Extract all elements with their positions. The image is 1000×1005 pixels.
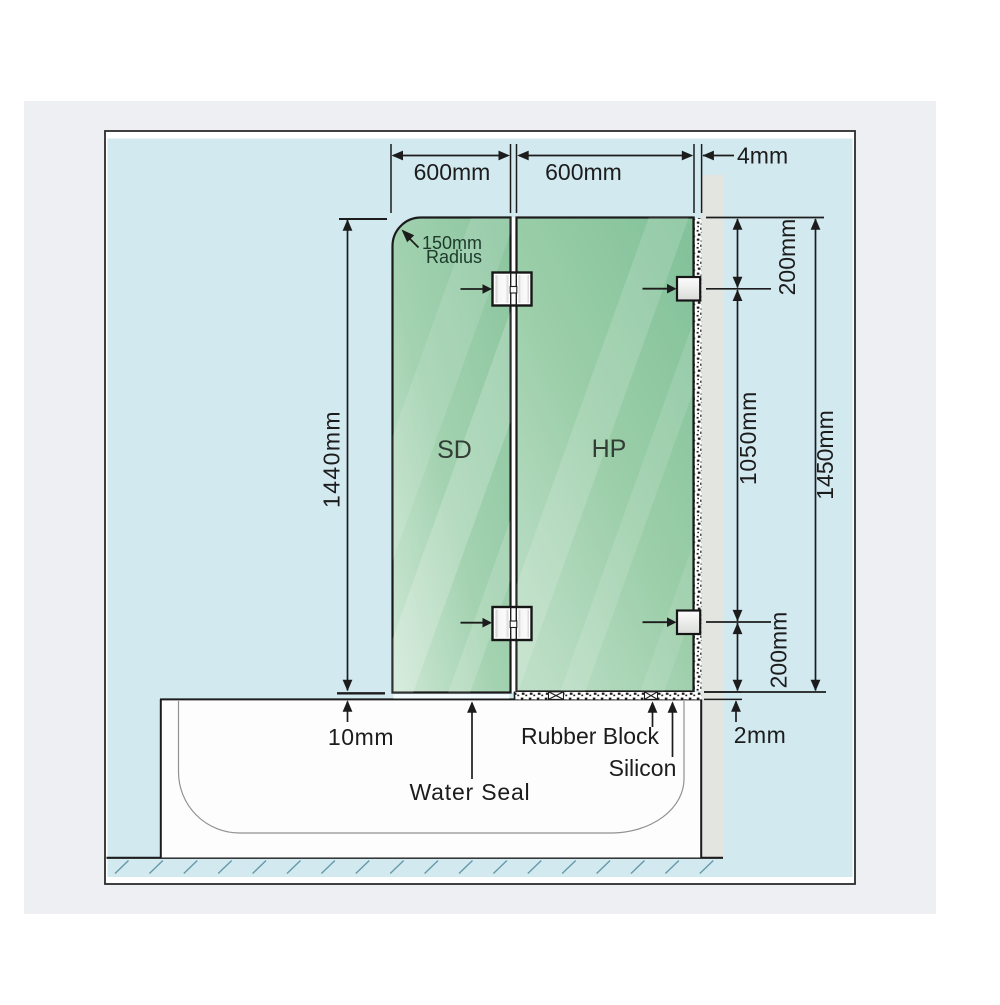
svg-text:Rubber Block: Rubber Block bbox=[521, 723, 660, 749]
svg-text:SD: SD bbox=[437, 436, 472, 464]
svg-text:Silicon: Silicon bbox=[609, 755, 677, 781]
svg-text:600mm: 600mm bbox=[545, 159, 622, 185]
svg-text:200mm: 200mm bbox=[766, 612, 792, 689]
svg-text:2mm: 2mm bbox=[734, 722, 787, 748]
svg-text:4mm: 4mm bbox=[737, 143, 788, 169]
svg-text:1450mm: 1450mm bbox=[812, 410, 838, 499]
svg-text:600mm: 600mm bbox=[414, 159, 491, 185]
svg-text:10mm: 10mm bbox=[328, 724, 394, 750]
svg-text:1050mm: 1050mm bbox=[735, 391, 761, 485]
svg-text:1440mm: 1440mm bbox=[319, 410, 345, 508]
svg-text:200mm: 200mm bbox=[774, 219, 800, 296]
svg-text:HP: HP bbox=[592, 435, 627, 463]
svg-text:Radius: Radius bbox=[426, 247, 482, 267]
svg-text:Water Seal: Water Seal bbox=[410, 779, 531, 805]
